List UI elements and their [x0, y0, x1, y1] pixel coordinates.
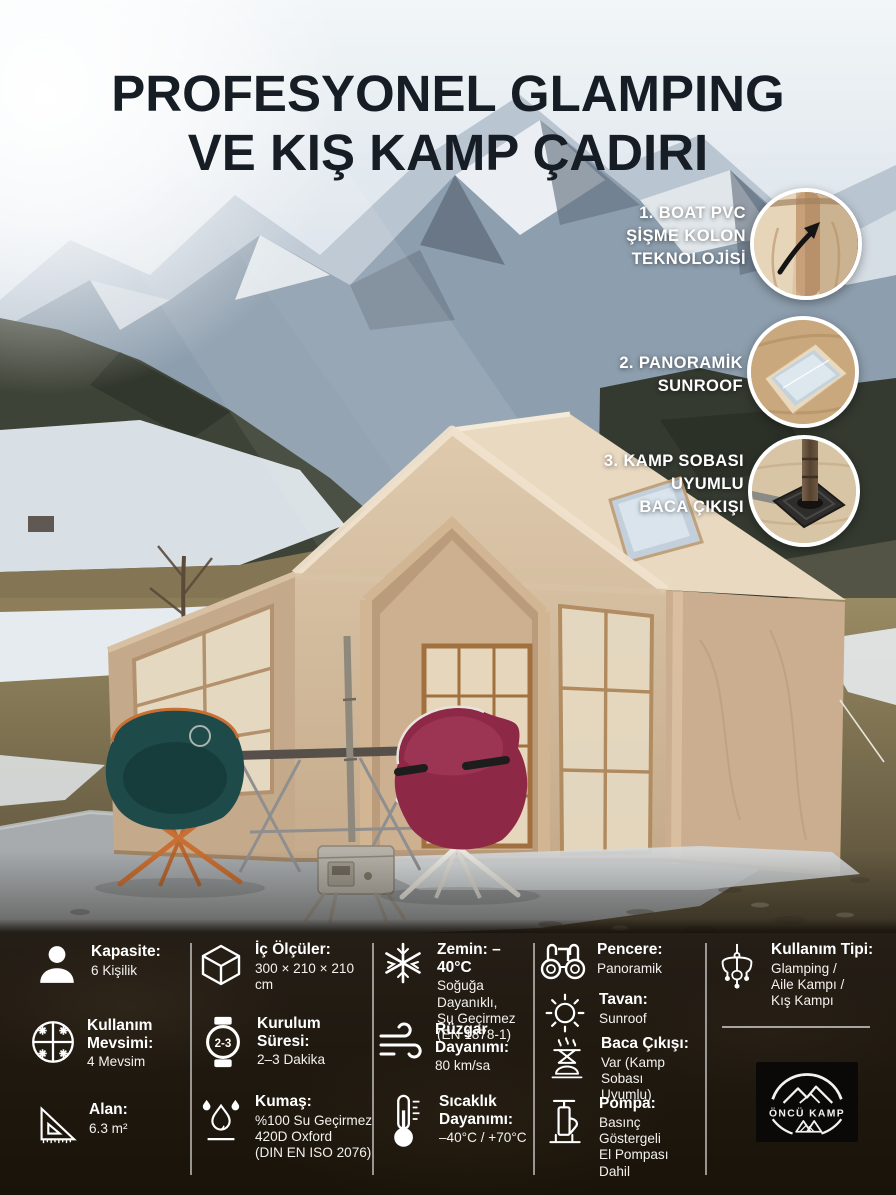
- spec-label: İç Ölçüler:: [255, 941, 374, 959]
- spec-value: %100 Su Geçirmez 420D Oxford (DIN EN ISO…: [255, 1113, 372, 1162]
- chimney-outlet-photo: [752, 439, 856, 543]
- spec-value: 4 Mevsim: [87, 1054, 153, 1070]
- spec-season: Kullanım Mevsimi:4 Mevsim: [28, 1017, 193, 1071]
- spec-label: Kumaş:: [255, 1093, 372, 1111]
- callout-circle-1: [750, 188, 862, 300]
- triangle-ruler-icon: [30, 1101, 80, 1147]
- title-line2-bold: KIŞ KAMP ÇADIRI: [270, 124, 708, 181]
- title-line1-regular: PROFESYONEL: [111, 65, 510, 122]
- specs-panel: Kapasite:6 Kişilik Kullanım Mevsimi:4 Me…: [0, 933, 896, 1195]
- spec-value: 6 Kişilik: [91, 963, 161, 979]
- wind-icon: [376, 1021, 426, 1075]
- spec-label: Kullanım Mevsimi:: [87, 1017, 153, 1052]
- spec-label: Pencere:: [597, 941, 662, 959]
- spec-wind: Rüzgar Dayanımı:80 km/sa: [376, 1021, 526, 1075]
- title-line-2: VE KIŞ KAMP ÇADIRI: [0, 123, 896, 182]
- spec-value: 300 × 210 × 210 cm: [255, 961, 374, 994]
- spec-value: –40°C / +70°C: [439, 1130, 527, 1146]
- spec-label: Tavan:: [599, 991, 648, 1009]
- title-line-1: PROFESYONEL GLAMPING: [0, 64, 896, 123]
- spec-value: Panoramik: [597, 961, 662, 977]
- person-icon: [32, 943, 82, 985]
- spec-fabric: Kumaş:%100 Su Geçirmez 420D Oxford (DIN …: [196, 1093, 374, 1162]
- tent-infographic-poster: PROFESYONEL GLAMPING VE KIŞ KAMP ÇADIRI …: [0, 0, 896, 1195]
- spec-value: 2–3 Dakika: [257, 1052, 325, 1068]
- inflatable-column-photo: [754, 192, 858, 296]
- spec-area: Alan:6.3 m²: [30, 1101, 190, 1147]
- four-seasons-icon: [28, 1017, 78, 1071]
- column-divider: [705, 943, 707, 1175]
- watch-icon-text: 2-3: [215, 1038, 232, 1050]
- chandelier-icon: [712, 941, 762, 1010]
- callout-label-1: 1. BOAT PVC ŞİŞME KOLON TEKNOLOJİSİ: [626, 202, 746, 270]
- column-divider: [533, 943, 535, 1175]
- spec-value: Glamping / Aile Kampı / Kış Kampı: [771, 961, 873, 1010]
- spec-capacity: Kapasite:6 Kişilik: [32, 943, 192, 985]
- spec-window: Pencere:Panoramik: [538, 941, 698, 983]
- hand-pump-icon: [540, 1095, 590, 1180]
- spec-label: Sıcaklık Dayanımı:: [439, 1093, 527, 1128]
- spec-value: Basınç Göstergeli El Pompası Dahil: [599, 1115, 702, 1180]
- spec-label: Kapasite:: [91, 943, 161, 961]
- spec-value: 6.3 m²: [89, 1121, 128, 1137]
- callout-circle-2: [747, 316, 859, 428]
- callout-circle-3: [748, 435, 860, 547]
- sun-icon: [540, 991, 590, 1035]
- page-title: PROFESYONEL GLAMPING VE KIŞ KAMP ÇADIRI: [0, 64, 896, 182]
- sunroof-photo: [751, 320, 855, 424]
- spec-chimney: Baca Çıkışı:Var (Kamp Sobası Uyumlu): [542, 1035, 704, 1104]
- binoculars-icon: [538, 941, 588, 983]
- spec-dimensions: İç Ölçüler:300 × 210 × 210 cm: [196, 941, 374, 993]
- spec-label: Zemin: –40°C: [437, 941, 528, 976]
- spec-ceiling: Tavan:Sunroof: [540, 991, 700, 1035]
- spec-label: Pompa:: [599, 1095, 702, 1113]
- logo-divider: [722, 1026, 870, 1028]
- spec-label: Baca Çıkışı:: [601, 1035, 704, 1053]
- cube-icon: [196, 941, 246, 993]
- thermometer-icon: [380, 1093, 430, 1147]
- title-line2-regular: VE: [188, 124, 270, 181]
- spec-label: Kullanım Tipi:: [771, 941, 873, 959]
- spec-temperature: Sıcaklık Dayanımı:–40°C / +70°C: [380, 1093, 530, 1147]
- callout-label-3: 3. KAMP SOBASI UYUMLU BACA ÇIKIŞI: [604, 450, 744, 518]
- spec-pump: Pompa:Basınç Göstergeli El Pompası Dahil: [540, 1095, 702, 1180]
- spec-label: Rüzgar Dayanımı:: [435, 1021, 509, 1056]
- spec-value: 80 km/sa: [435, 1058, 509, 1074]
- spec-label: Kurulum Süresi:: [257, 1015, 325, 1050]
- water-drops-icon: [196, 1093, 246, 1162]
- watch-icon: 2-3: [198, 1015, 248, 1069]
- spec-value: Sunroof: [599, 1011, 648, 1027]
- spec-usage-type: Kullanım Tipi:Glamping / Aile Kampı / Kı…: [712, 941, 887, 1010]
- spec-setup-time: 2-3 Kurulum Süresi:2–3 Dakika: [198, 1015, 368, 1069]
- brand-logo: ÖNCÜ KAMP: [756, 1062, 858, 1142]
- brand-logo-text: ÖNCÜ KAMP: [769, 1106, 845, 1119]
- title-line1-bold: GLAMPING: [510, 65, 785, 122]
- callout-label-2: 2. PANORAMİK SUNROOF: [619, 352, 743, 398]
- spec-label: Alan:: [89, 1101, 128, 1119]
- camp-stove-icon: [542, 1035, 592, 1104]
